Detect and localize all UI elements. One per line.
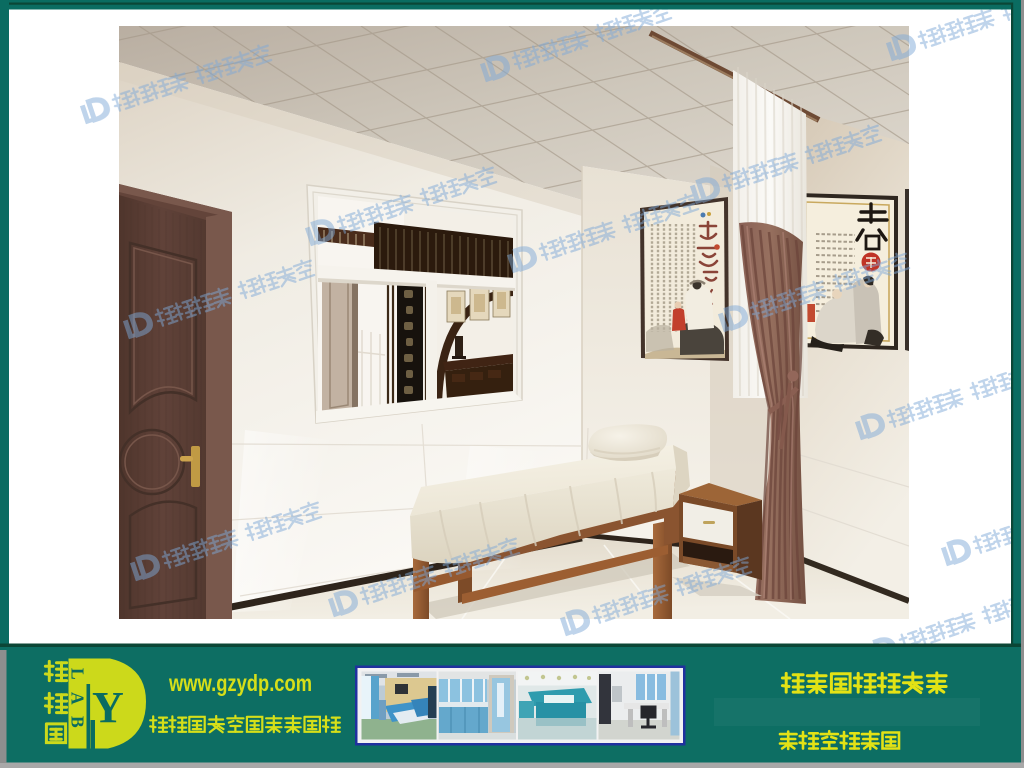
svg-text:www.gzydp.com: www.gzydp.com: [168, 670, 312, 696]
svg-text:A: A: [68, 692, 88, 705]
svg-text:B: B: [68, 716, 88, 728]
svg-text:Y: Y: [92, 683, 124, 732]
svg-text:L: L: [68, 668, 88, 680]
